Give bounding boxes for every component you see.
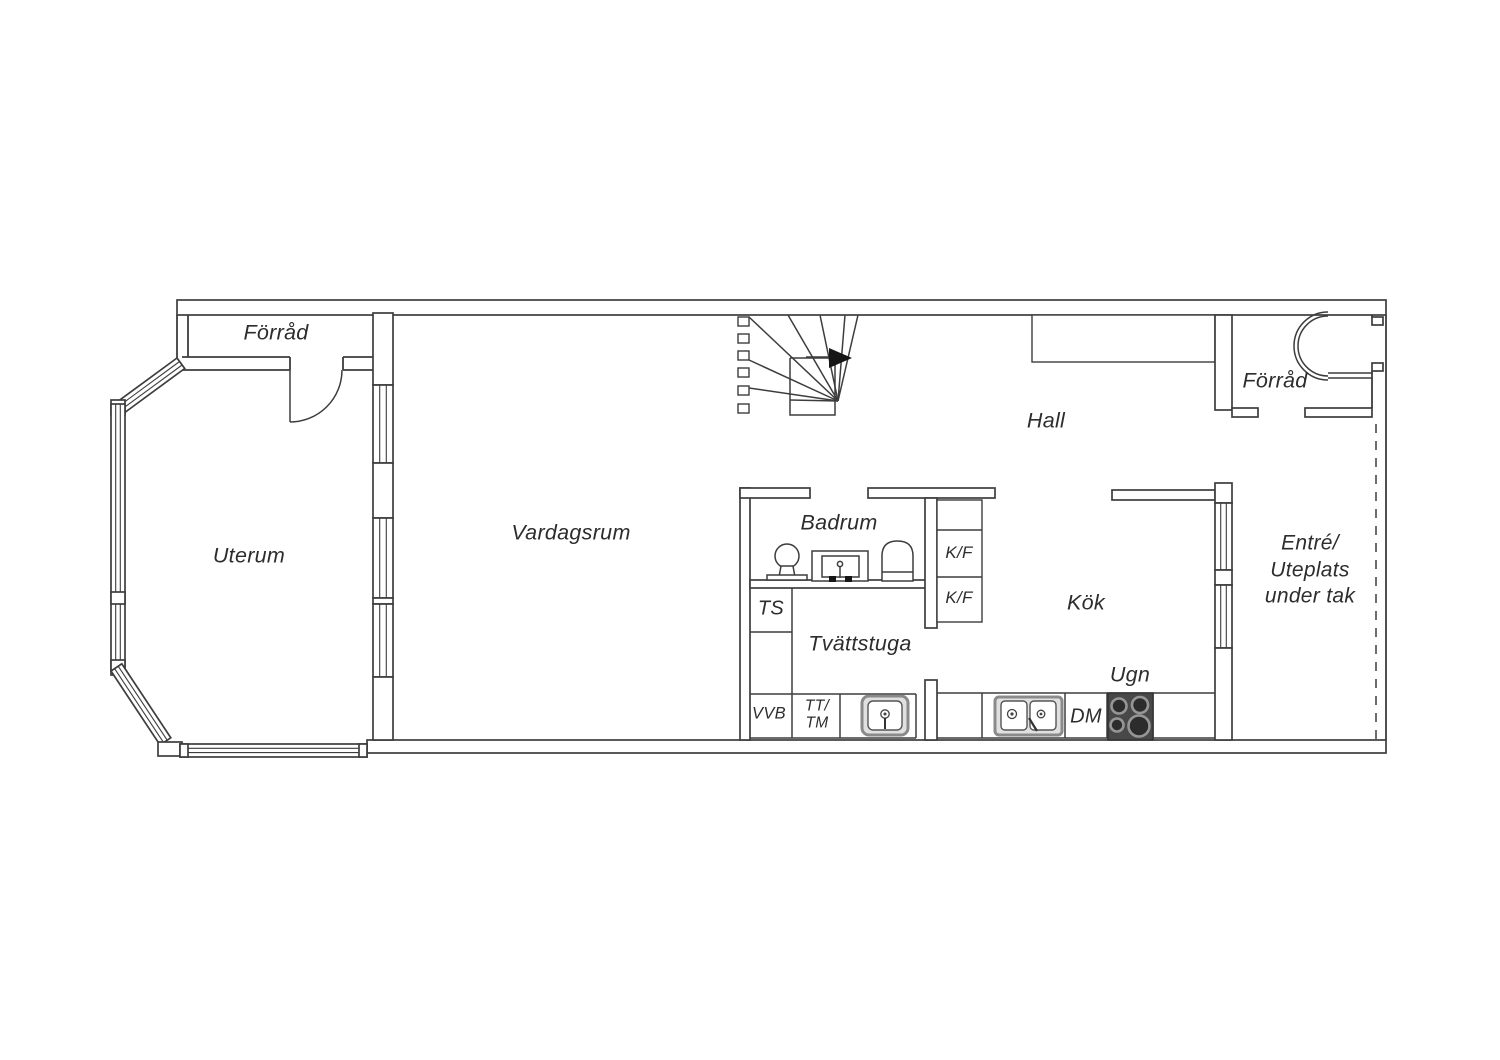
floor-plan-page: Förråd Uterum Vardagsrum Hall Badrum K/F… [0,0,1500,1060]
uterum-vardagsrum-wall [373,313,393,740]
appliance-label-vvb: VVB [752,705,786,724]
hall-kitchen-wall [1112,490,1215,500]
room-label-kok: Kök [1067,591,1105,616]
staircase [738,315,858,415]
appliance-label-tt: TT/ [805,699,829,716]
room-label-forrad-topleft: Förråd [243,321,308,346]
appliance-label-ts: TS [758,598,784,621]
appliance-label-ugn: Ugn [1110,663,1150,688]
stove-icon [1108,693,1153,740]
appliance-label-dm: DM [1070,706,1102,729]
room-label-tvattstuga: Tvättstuga [808,632,911,657]
room-label-entre: Entré/ Uteplats under tak [1265,530,1355,610]
washbasin-icon [882,541,913,581]
toilet-icon [767,544,807,580]
kitchen-entre-wall [1215,315,1232,740]
appliance-label-tttm: TT/ TM [805,699,829,732]
hall-closet [1032,315,1215,362]
laundry-sink-icon [862,696,908,735]
appliance-label-kf-upper: K/F [945,543,972,563]
room-label-hall: Hall [1027,409,1065,434]
entre-line2: Uteplats [1265,557,1355,584]
storage-room-topright-walls [1232,315,1383,417]
appliance-label-kf-lower: K/F [945,588,972,608]
entre-line1: Entré/ [1265,530,1355,557]
room-label-badrum: Badrum [800,511,877,536]
bathtub-icon [812,551,868,582]
door-arc-storage-topleft [290,370,342,422]
appliance-label-tm: TM [805,715,829,732]
room-label-forrad-topright: Förråd [1242,369,1307,394]
entre-line3: under tak [1265,583,1355,610]
room-label-vardagsrum: Vardagsrum [511,521,630,546]
room-label-uterum: Uterum [213,544,285,569]
kitchen-sink-icon [995,697,1062,735]
outer-walls [177,300,1386,753]
